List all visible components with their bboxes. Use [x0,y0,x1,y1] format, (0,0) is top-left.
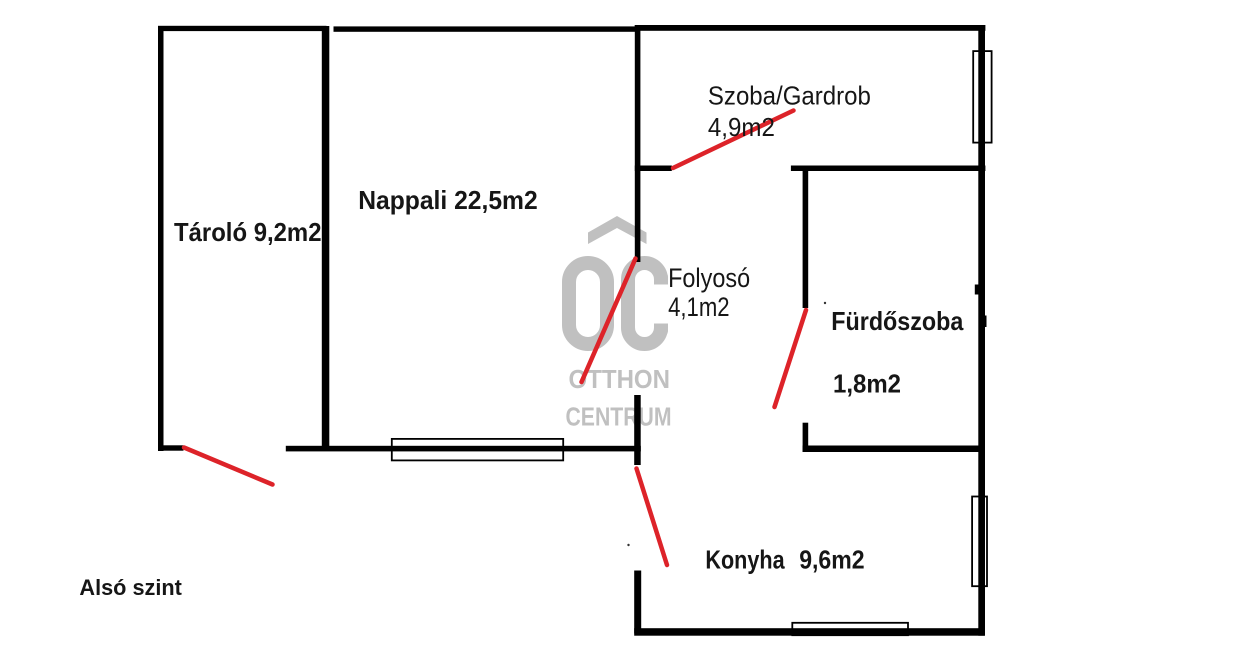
svg-text:Alsó szint: Alsó szint [79,575,182,600]
svg-text:Folyosó: Folyosó [668,263,750,293]
svg-text:Nappali 22,5m2: Nappali 22,5m2 [358,185,538,215]
svg-text:Konyha: Konyha [705,545,785,575]
svg-text:1,8m2: 1,8m2 [833,369,901,399]
svg-text:Fürdőszoba: Fürdőszoba [831,306,963,336]
svg-text:CENTRUM: CENTRUM [566,402,672,432]
svg-text:Tároló 9,2m2: Tároló 9,2m2 [174,217,322,247]
svg-text:4,9m2: 4,9m2 [708,112,775,142]
svg-text:9,6m2: 9,6m2 [799,545,864,575]
svg-text:4,1m2: 4,1m2 [668,292,730,322]
svg-text:Szoba/Gardrob: Szoba/Gardrob [708,81,871,111]
